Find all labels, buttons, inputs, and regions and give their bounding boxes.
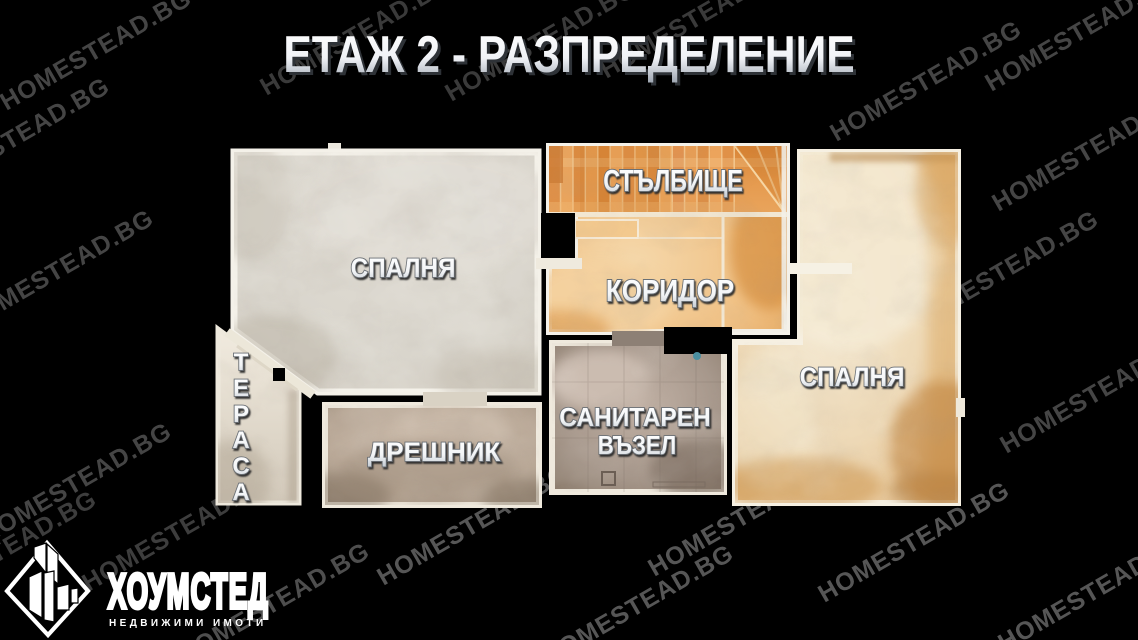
svg-text:ЕТАЖ 2 - РАЗПРЕДЕЛЕНИЕ: ЕТАЖ 2 - РАЗПРЕДЕЛЕНИЕ — [283, 26, 854, 84]
svg-text:СПАЛНЯ: СПАЛНЯ — [800, 363, 905, 392]
svg-text:ДРЕШНИК: ДРЕШНИК — [368, 437, 501, 467]
svg-text:КОРИДОР: КОРИДОР — [606, 274, 734, 309]
svg-text:НЕДВИЖИМИ ИМОТИ: НЕДВИЖИМИ ИМОТИ — [109, 618, 267, 629]
svg-text:А: А — [232, 427, 249, 454]
svg-text:САНИТАРЕН: САНИТАРЕН — [559, 404, 710, 433]
svg-text:Р: Р — [233, 401, 249, 428]
svg-text:СПАЛНЯ: СПАЛНЯ — [351, 254, 456, 283]
svg-text:ВЪЗЕЛ: ВЪЗЕЛ — [598, 432, 676, 461]
svg-text:С: С — [232, 453, 249, 480]
svg-text:СТЪЛБИЩЕ: СТЪЛБИЩЕ — [603, 163, 743, 198]
svg-text:ХОУМСТЕД: ХОУМСТЕД — [108, 565, 269, 619]
svg-text:Е: Е — [233, 375, 249, 402]
svg-text:Т: Т — [234, 349, 249, 376]
svg-text:А: А — [232, 479, 249, 506]
